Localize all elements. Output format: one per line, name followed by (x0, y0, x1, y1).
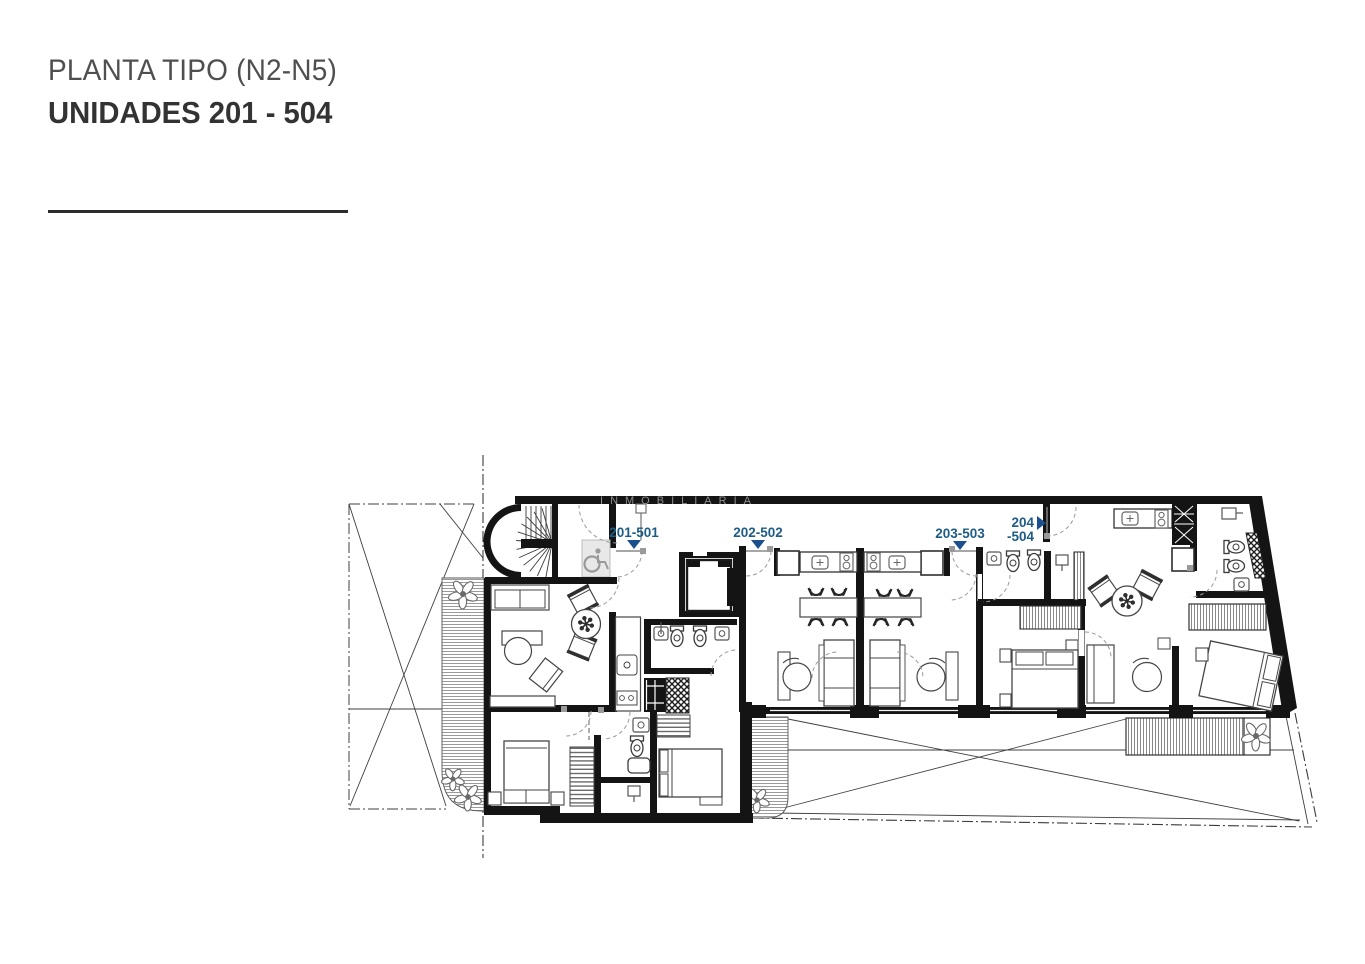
svg-text:-504: -504 (1007, 529, 1035, 544)
svg-text:204: 204 (1011, 515, 1034, 530)
svg-text:203-503: 203-503 (935, 526, 985, 541)
svg-text:INMOBILIARIA: INMOBILIARIA (600, 495, 758, 507)
svg-text:202-502: 202-502 (733, 525, 783, 540)
svg-text:201-501: 201-501 (609, 525, 659, 540)
